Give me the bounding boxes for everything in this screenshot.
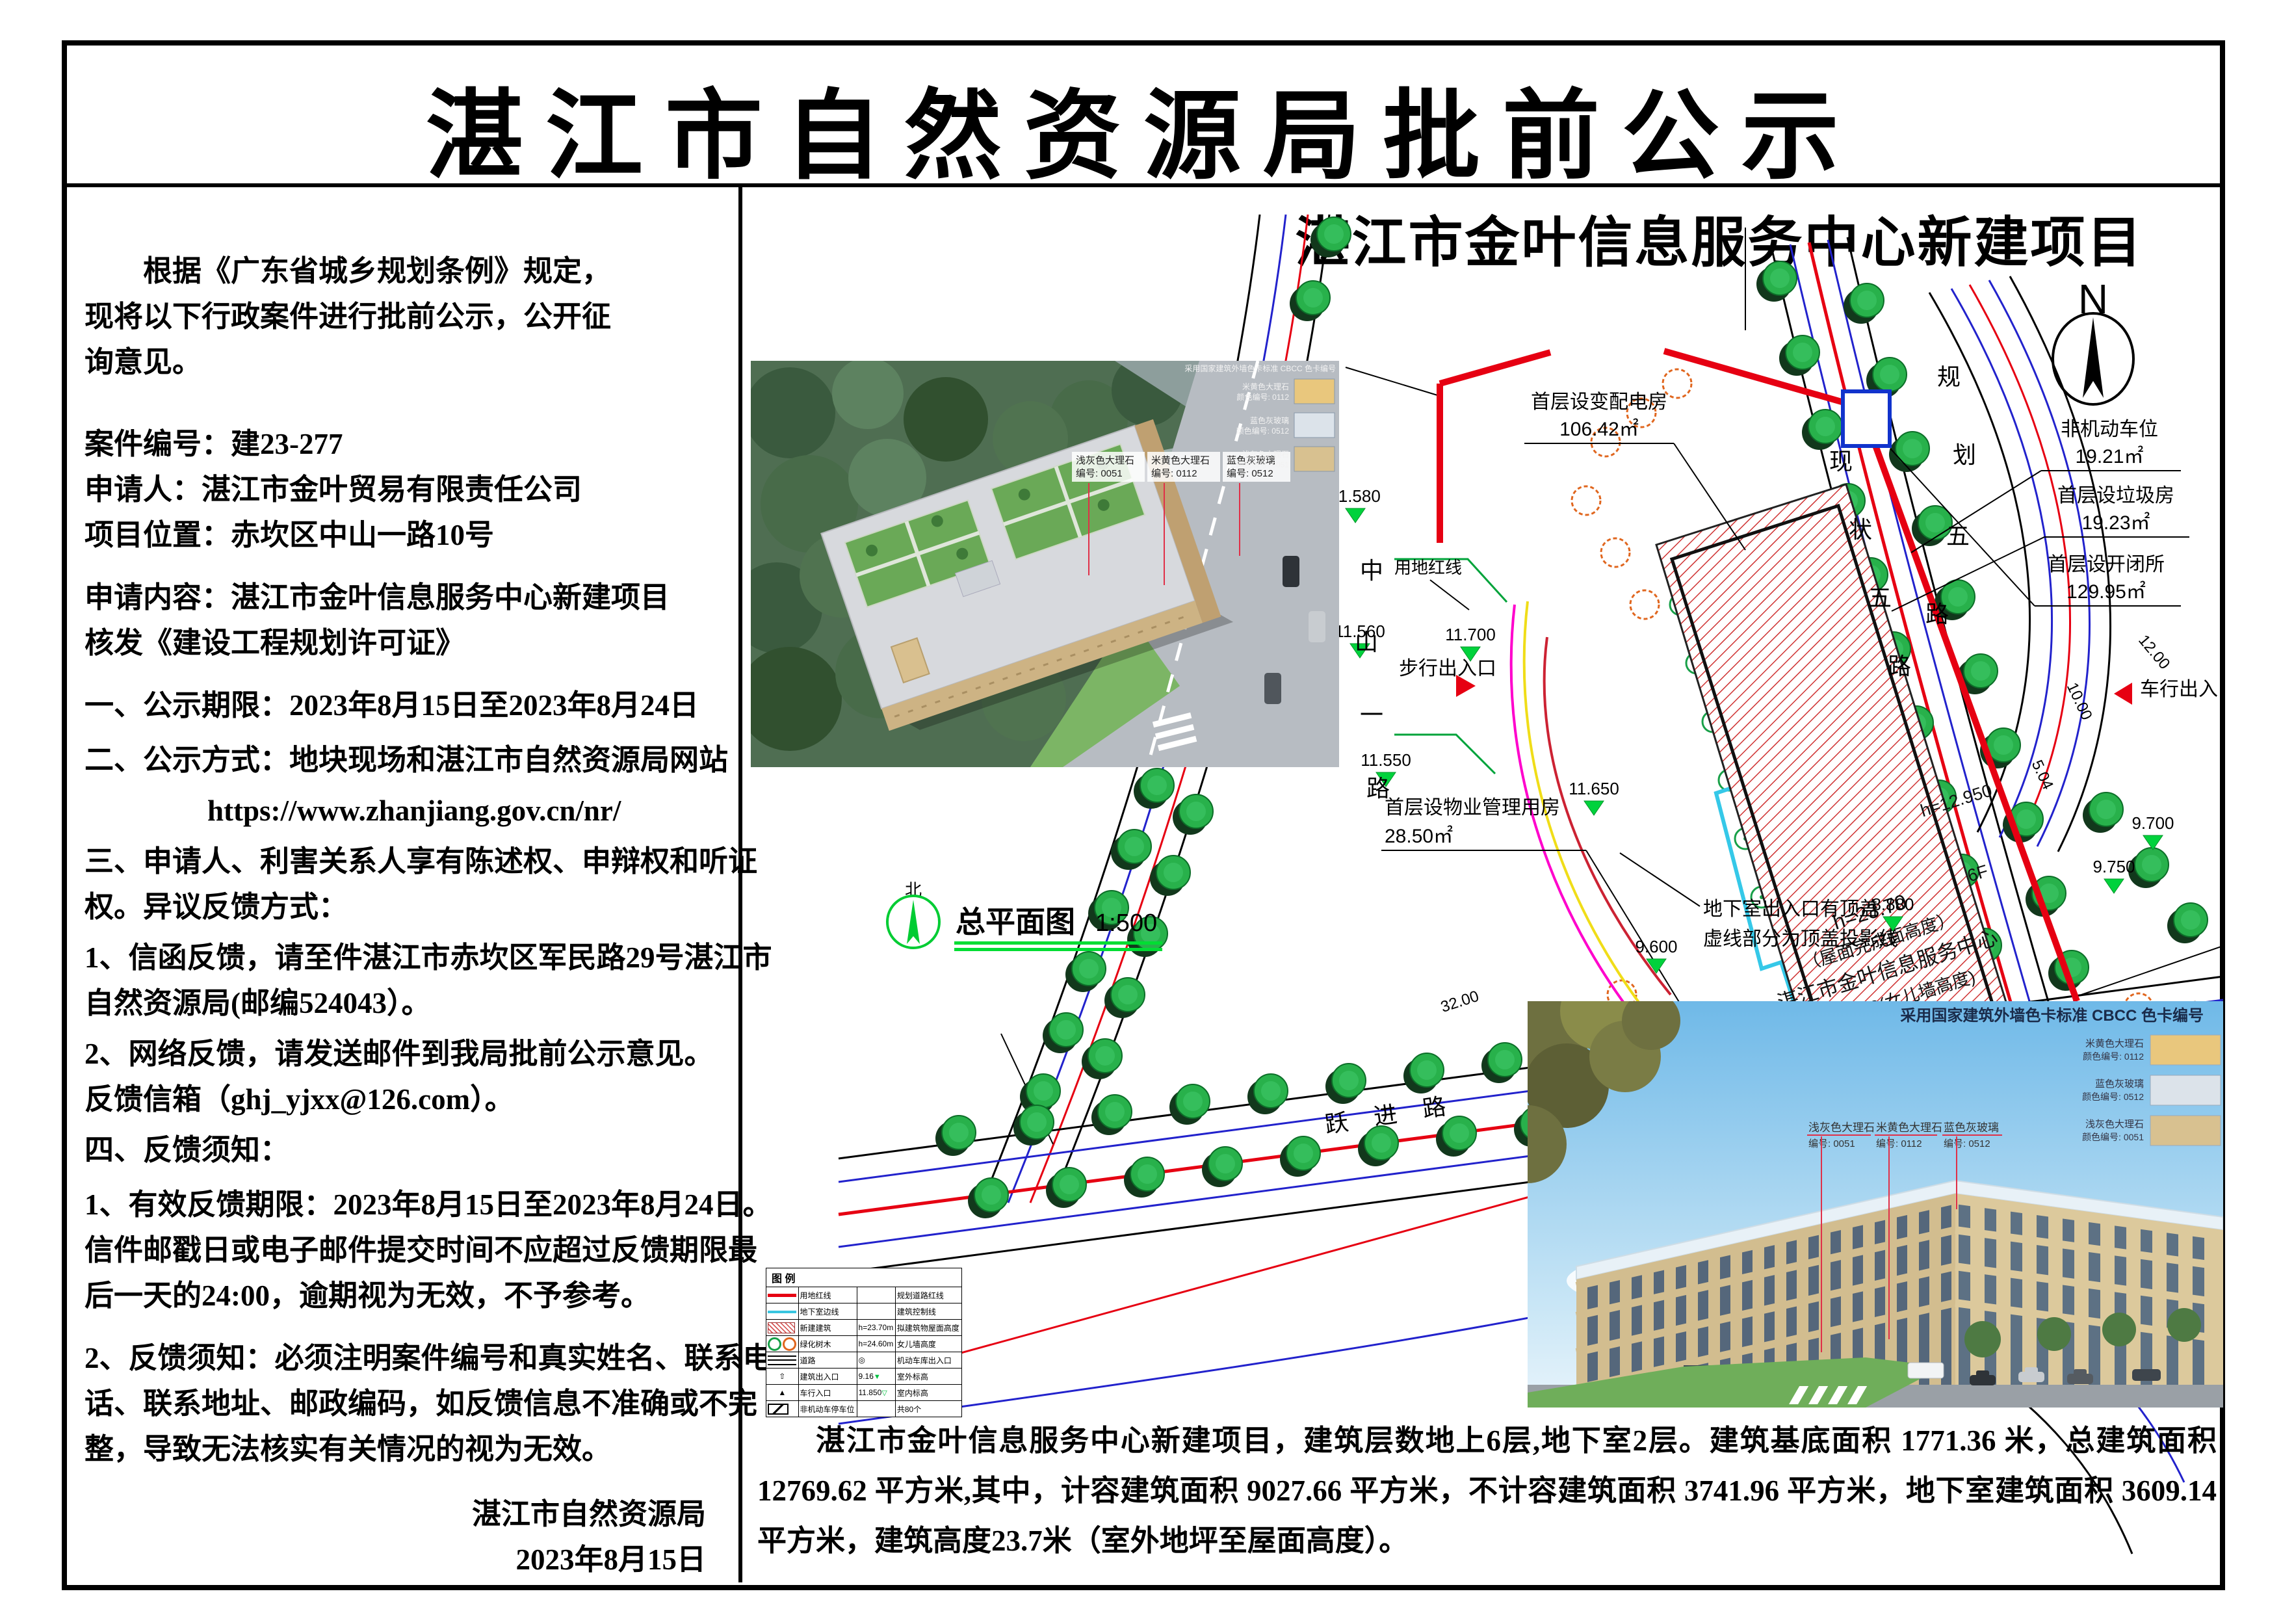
svg-text:跃: 跃 (1323, 1108, 1350, 1138)
svg-text:编号: 0512: 编号: 0512 (1227, 468, 1273, 479)
notice-line: 询意见。 (85, 339, 736, 385)
svg-text:浅灰色大理石: 浅灰色大理石 (1808, 1121, 1875, 1134)
svg-text:现: 现 (1829, 448, 1853, 475)
svg-text:编号: 0112: 编号: 0112 (1151, 468, 1197, 479)
svg-text:米黄色大理石: 米黄色大理石 (2085, 1038, 2144, 1049)
permit-name: 核发《建设工程规划许可证》 (85, 620, 736, 666)
project-location: 项目位置：赤坎区中山一路10号 (85, 512, 736, 558)
applicant: 申请人：湛江市金叶贸易有限责任公司 (85, 467, 736, 512)
svg-text:编号: 0512: 编号: 0512 (1944, 1138, 1990, 1149)
svg-text:路: 路 (1421, 1093, 1448, 1123)
legend-row: 地下室边线 建筑控制线 (766, 1303, 962, 1320)
rights-statement: 权。异议反馈方式： (85, 884, 736, 930)
valid-period: 信件邮戳日或电子邮件提交时间不应超过反馈期限最 (85, 1227, 736, 1273)
svg-text:首层设开闭所: 首层设开闭所 (2048, 554, 2165, 575)
issuer-signature: 湛江市自然资源局 (85, 1491, 736, 1537)
parking-icon (768, 1404, 789, 1415)
svg-text:总平面图: 总平面图 (956, 905, 1075, 939)
svg-text:9.600: 9.600 (1635, 937, 1677, 956)
legend-title: 图 例 (766, 1268, 962, 1287)
svg-text:19.21㎡: 19.21㎡ (2075, 446, 2143, 467)
mail-feedback: 自然资源局(邮编524043）。 (85, 980, 736, 1026)
north-compass-icon: N (2053, 276, 2133, 404)
tree-icon (783, 1337, 796, 1351)
legend-row: ▲车行入口 11.850▽室内标高 (766, 1385, 962, 1401)
svg-text:用地红线: 用地红线 (1394, 558, 1462, 577)
svg-text:1:500: 1:500 (1095, 910, 1157, 937)
valid-period: 1、有效反馈期限：2023年8月15日至2023年8月24日。 (85, 1182, 736, 1227)
svg-text:32.00: 32.00 (1439, 988, 1481, 1016)
feedback-requirement: 2、反馈须知：必须注明案件编号和真实姓名、联系电 (85, 1335, 736, 1381)
feedback-requirement: 话、联系地址、邮政编码，如反馈信息不准确或不完 (85, 1381, 736, 1426)
notice-line: 根据《广东省城乡规划条例》规定， (85, 248, 736, 294)
case-number: 案件编号：建23-277 (85, 421, 736, 467)
svg-text:106.42㎡: 106.42㎡ (1559, 419, 1639, 440)
rights-statement: 三、申请人、利害关系人享有陈述权、申辩权和听证 (85, 839, 736, 884)
mail-feedback: 1、信函反馈，请至件湛江市赤坎区军民路29号湛江市 (85, 935, 736, 980)
svg-text:路: 路 (1366, 775, 1390, 802)
svg-text:9.750: 9.750 (2092, 857, 2135, 876)
entrance-arrow-icon (2114, 683, 2132, 705)
svg-text:步行出入口: 步行出入口 (1399, 658, 1496, 679)
callout-car-entrance: 车行出入口 (2114, 679, 2223, 705)
svg-text:五: 五 (1946, 523, 1970, 549)
svg-text:9.700: 9.700 (2131, 813, 2174, 833)
svg-text:129.95㎡: 129.95㎡ (2066, 581, 2146, 603)
plan-legend: 图 例 用地红线 规划道路红线 地下室边线 建筑控制线 新建建筑 h=23.70… (766, 1268, 962, 1417)
svg-text:地下室出入口有顶盖: 地下室出入口有顶盖 (1703, 898, 1879, 920)
legend-row: 用地红线 规划道路红线 (766, 1287, 962, 1303)
svg-text:颜色编号: 0512: 颜色编号: 0512 (1236, 426, 1290, 436)
legend-row: 道路 ◎机动车库出入口 (766, 1352, 962, 1369)
svg-text:编号: 0112: 编号: 0112 (1876, 1138, 1922, 1149)
svg-text:米黄色大理石: 米黄色大理石 (1876, 1121, 1942, 1134)
drawing-title-block: 北 总平面图 1:500 (887, 880, 1162, 951)
svg-text:10.00: 10.00 (2063, 680, 2096, 723)
svg-text:颜色编号: 0112: 颜色编号: 0112 (2083, 1051, 2144, 1062)
svg-text:浅灰色大理石: 浅灰色大理石 (1242, 450, 1289, 459)
project-summary: 湛江市金叶信息服务中心新建项目，建筑层数地上6层,地下室2层。建筑基底面积 17… (757, 1416, 2217, 1566)
svg-text:11.700: 11.700 (1445, 625, 1496, 644)
legend-row: 绿化树木 h=24.60m女儿墙高度 (766, 1336, 962, 1352)
svg-text:五: 五 (1868, 584, 1892, 611)
svg-text:非机动车位: 非机动车位 (2061, 419, 2158, 440)
red-line-icon (768, 1294, 796, 1297)
svg-text:蓝色灰玻璃: 蓝色灰玻璃 (2095, 1079, 2144, 1090)
valid-period: 后一天的24:00，逾期视为无效，不予参考。 (85, 1273, 736, 1318)
legend-row: ⇧建筑出入口 9.16▼室外标高 (766, 1369, 962, 1385)
svg-text:颜色编号: 0051: 颜色编号: 0051 (1236, 460, 1290, 469)
road-icon (768, 1356, 796, 1365)
svg-text:5.04: 5.04 (2028, 757, 2057, 792)
svg-text:蓝色灰玻璃: 蓝色灰玻璃 (1250, 416, 1289, 425)
legend-row: 新建建筑 h=23.70m拟建筑物屋面高度 (766, 1320, 962, 1336)
online-feedback: 2、网络反馈，请发送邮件到我局批前公示意见。 (85, 1031, 736, 1077)
publicity-url: https://www.zhanjiang.gov.cn/nr/ (85, 788, 736, 833)
street-render: 浅灰色大理石 编号: 0112 编号: 0051 米黄色大理石 编号: 0112… (1528, 1001, 2223, 1408)
feedback-requirement: 整，导致无法核实有关情况的视为无效。 (85, 1426, 736, 1472)
notice-line: 现将以下行政案件进行批前公示，公开征 (85, 294, 736, 339)
legend-row: 非机动车停车位 共80个 (766, 1401, 962, 1417)
svg-text:颜色编号: 0512: 颜色编号: 0512 (2082, 1092, 2144, 1102)
svg-text:颜色编号: 0051: 颜色编号: 0051 (2082, 1132, 2144, 1142)
svg-text:编号: 0051: 编号: 0051 (1808, 1138, 1855, 1149)
feedback-email: 反馈信箱（ghj_yjxx@126.com）。 (85, 1077, 736, 1122)
svg-text:一: 一 (1360, 701, 1383, 728)
svg-text:采用国家建筑外墙色卡标准 CBCC 色卡编号: 采用国家建筑外墙色卡标准 CBCC 色卡编号 (1900, 1006, 2204, 1025)
svg-text:浅灰色大理石: 浅灰色大理石 (1076, 455, 1134, 466)
callout-red-line: 用地红线 (1394, 558, 1469, 610)
svg-text:12.00: 12.00 (2135, 631, 2173, 672)
publicity-period: 一、公示期限：2023年8月15日至2023年8月24日 (85, 683, 736, 728)
svg-text:中: 中 (1360, 557, 1383, 584)
issue-date: 2023年8月15日 (85, 1537, 736, 1582)
feedback-notes-heading: 四、反馈须知： (85, 1127, 736, 1173)
callout-walk-entrance: 步行出入口 (1399, 658, 1496, 697)
svg-text:首层设垃圾房: 首层设垃圾房 (2057, 485, 2174, 506)
svg-text:规: 规 (1937, 363, 1961, 390)
svg-text:车行出入口: 车行出入口 (2140, 679, 2223, 700)
svg-text:19.23㎡: 19.23㎡ (2081, 512, 2150, 534)
svg-text:路: 路 (1888, 653, 1911, 679)
svg-text:划: 划 (1953, 441, 1976, 468)
svg-text:8.880: 8.880 (1871, 895, 1914, 914)
svg-text:路: 路 (1925, 601, 1949, 627)
page-title: 湛江市自然资源局批前公示 (62, 57, 2225, 198)
svg-text:状: 状 (1849, 516, 1872, 543)
plan-title: 湛江市金叶信息服务中心新建项目 (1295, 212, 2143, 273)
elevation-marker-icon: ▽ (881, 1389, 887, 1397)
svg-text:28.50㎡: 28.50㎡ (1385, 826, 1453, 847)
elevation-marker-icon: ▼ (874, 1373, 881, 1381)
svg-text:进: 进 (1372, 1101, 1399, 1131)
svg-text:虚线部分为顶盖投影线: 虚线部分为顶盖投影线 (1703, 928, 1898, 950)
aerial-render: 浅灰色大理石 编号: 0051 米黄色大理石 编号: 0112 蓝色灰玻璃 编号… (751, 361, 1339, 767)
tree-icon (768, 1337, 781, 1351)
cyan-line-icon (768, 1311, 796, 1313)
notice-panel: 根据《广东省城乡规划条例》规定， 现将以下行政案件进行批前公示，公开征 询意见。… (85, 248, 736, 1582)
hatch-icon (768, 1322, 795, 1333)
svg-text:11.550: 11.550 (1361, 750, 1411, 770)
switch-room-box (1843, 391, 1890, 446)
svg-text:浅灰色大理石: 浅灰色大理石 (2085, 1119, 2144, 1130)
svg-text:米黄色大理石: 米黄色大理石 (1151, 455, 1210, 466)
application-content: 申请内容：湛江市金叶信息服务中心新建项目 (85, 575, 736, 620)
svg-text:蓝色灰玻璃: 蓝色灰玻璃 (1944, 1121, 1999, 1134)
title-separator (62, 183, 2225, 187)
publicity-method: 二、公示方式：地块现场和湛江市自然资源局网站 (85, 737, 736, 783)
svg-text:编号: 0051: 编号: 0051 (1076, 468, 1123, 479)
svg-text:颜色编号: 0112: 颜色编号: 0112 (1237, 392, 1290, 402)
svg-text:山: 山 (1355, 629, 1378, 655)
svg-text:首层设物业管理用房: 首层设物业管理用房 (1385, 797, 1560, 819)
svg-text:采用国家建筑外墙色卡标准 CBCC 色卡编号: 采用国家建筑外墙色卡标准 CBCC 色卡编号 (1184, 363, 1336, 373)
svg-text:米黄色大理石: 米黄色大理石 (1242, 382, 1289, 391)
svg-text:11.650: 11.650 (1569, 779, 1619, 798)
svg-text:首层设变配电房: 首层设变配电房 (1531, 391, 1667, 413)
